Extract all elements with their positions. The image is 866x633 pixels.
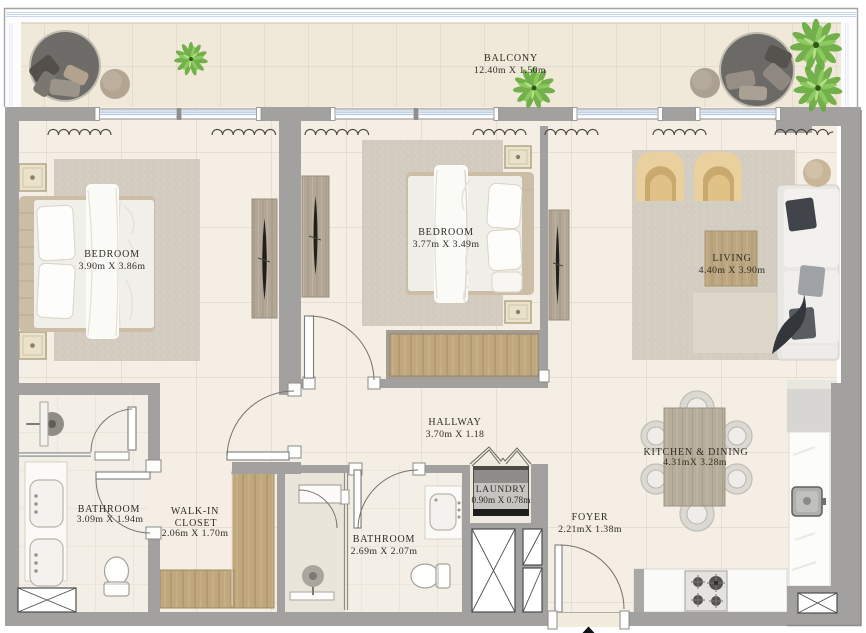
svg-text:3.77m X 3.49m: 3.77m X 3.49m [413, 239, 480, 250]
svg-text:12.40m X 1.50m: 12.40m X 1.50m [474, 65, 546, 76]
svg-text:2.69m X 2.07m: 2.69m X 2.07m [351, 546, 418, 557]
svg-text:3.70m X 1.18: 3.70m X 1.18 [426, 429, 485, 440]
svg-text:BALCONY: BALCONY [484, 53, 538, 64]
svg-text:0.90m X 0.78m: 0.90m X 0.78m [472, 495, 531, 505]
svg-text:3.09m X 1.94m: 3.09m X 1.94m [77, 514, 144, 525]
svg-text:BEDROOM: BEDROOM [418, 227, 474, 238]
svg-text:2.06m X 1.70m: 2.06m X 1.70m [162, 528, 229, 539]
svg-text:FOYER: FOYER [572, 512, 609, 523]
svg-text:HALLWAY: HALLWAY [428, 417, 481, 428]
svg-text:BATHROOM: BATHROOM [353, 534, 416, 545]
svg-text:LIVING: LIVING [712, 253, 751, 264]
svg-text:4.40m X 3.90m: 4.40m X 3.90m [699, 265, 766, 276]
svg-text:3.90m X 3.86m: 3.90m X 3.86m [79, 261, 146, 272]
svg-text:LAUNDRY: LAUNDRY [476, 484, 527, 495]
svg-text:2.21mX 1.38m: 2.21mX 1.38m [558, 524, 622, 535]
svg-text:WALK-IN: WALK-IN [171, 506, 219, 517]
svg-text:4.31mX 3.28m: 4.31mX 3.28m [663, 457, 727, 468]
svg-text:BEDROOM: BEDROOM [84, 249, 140, 260]
